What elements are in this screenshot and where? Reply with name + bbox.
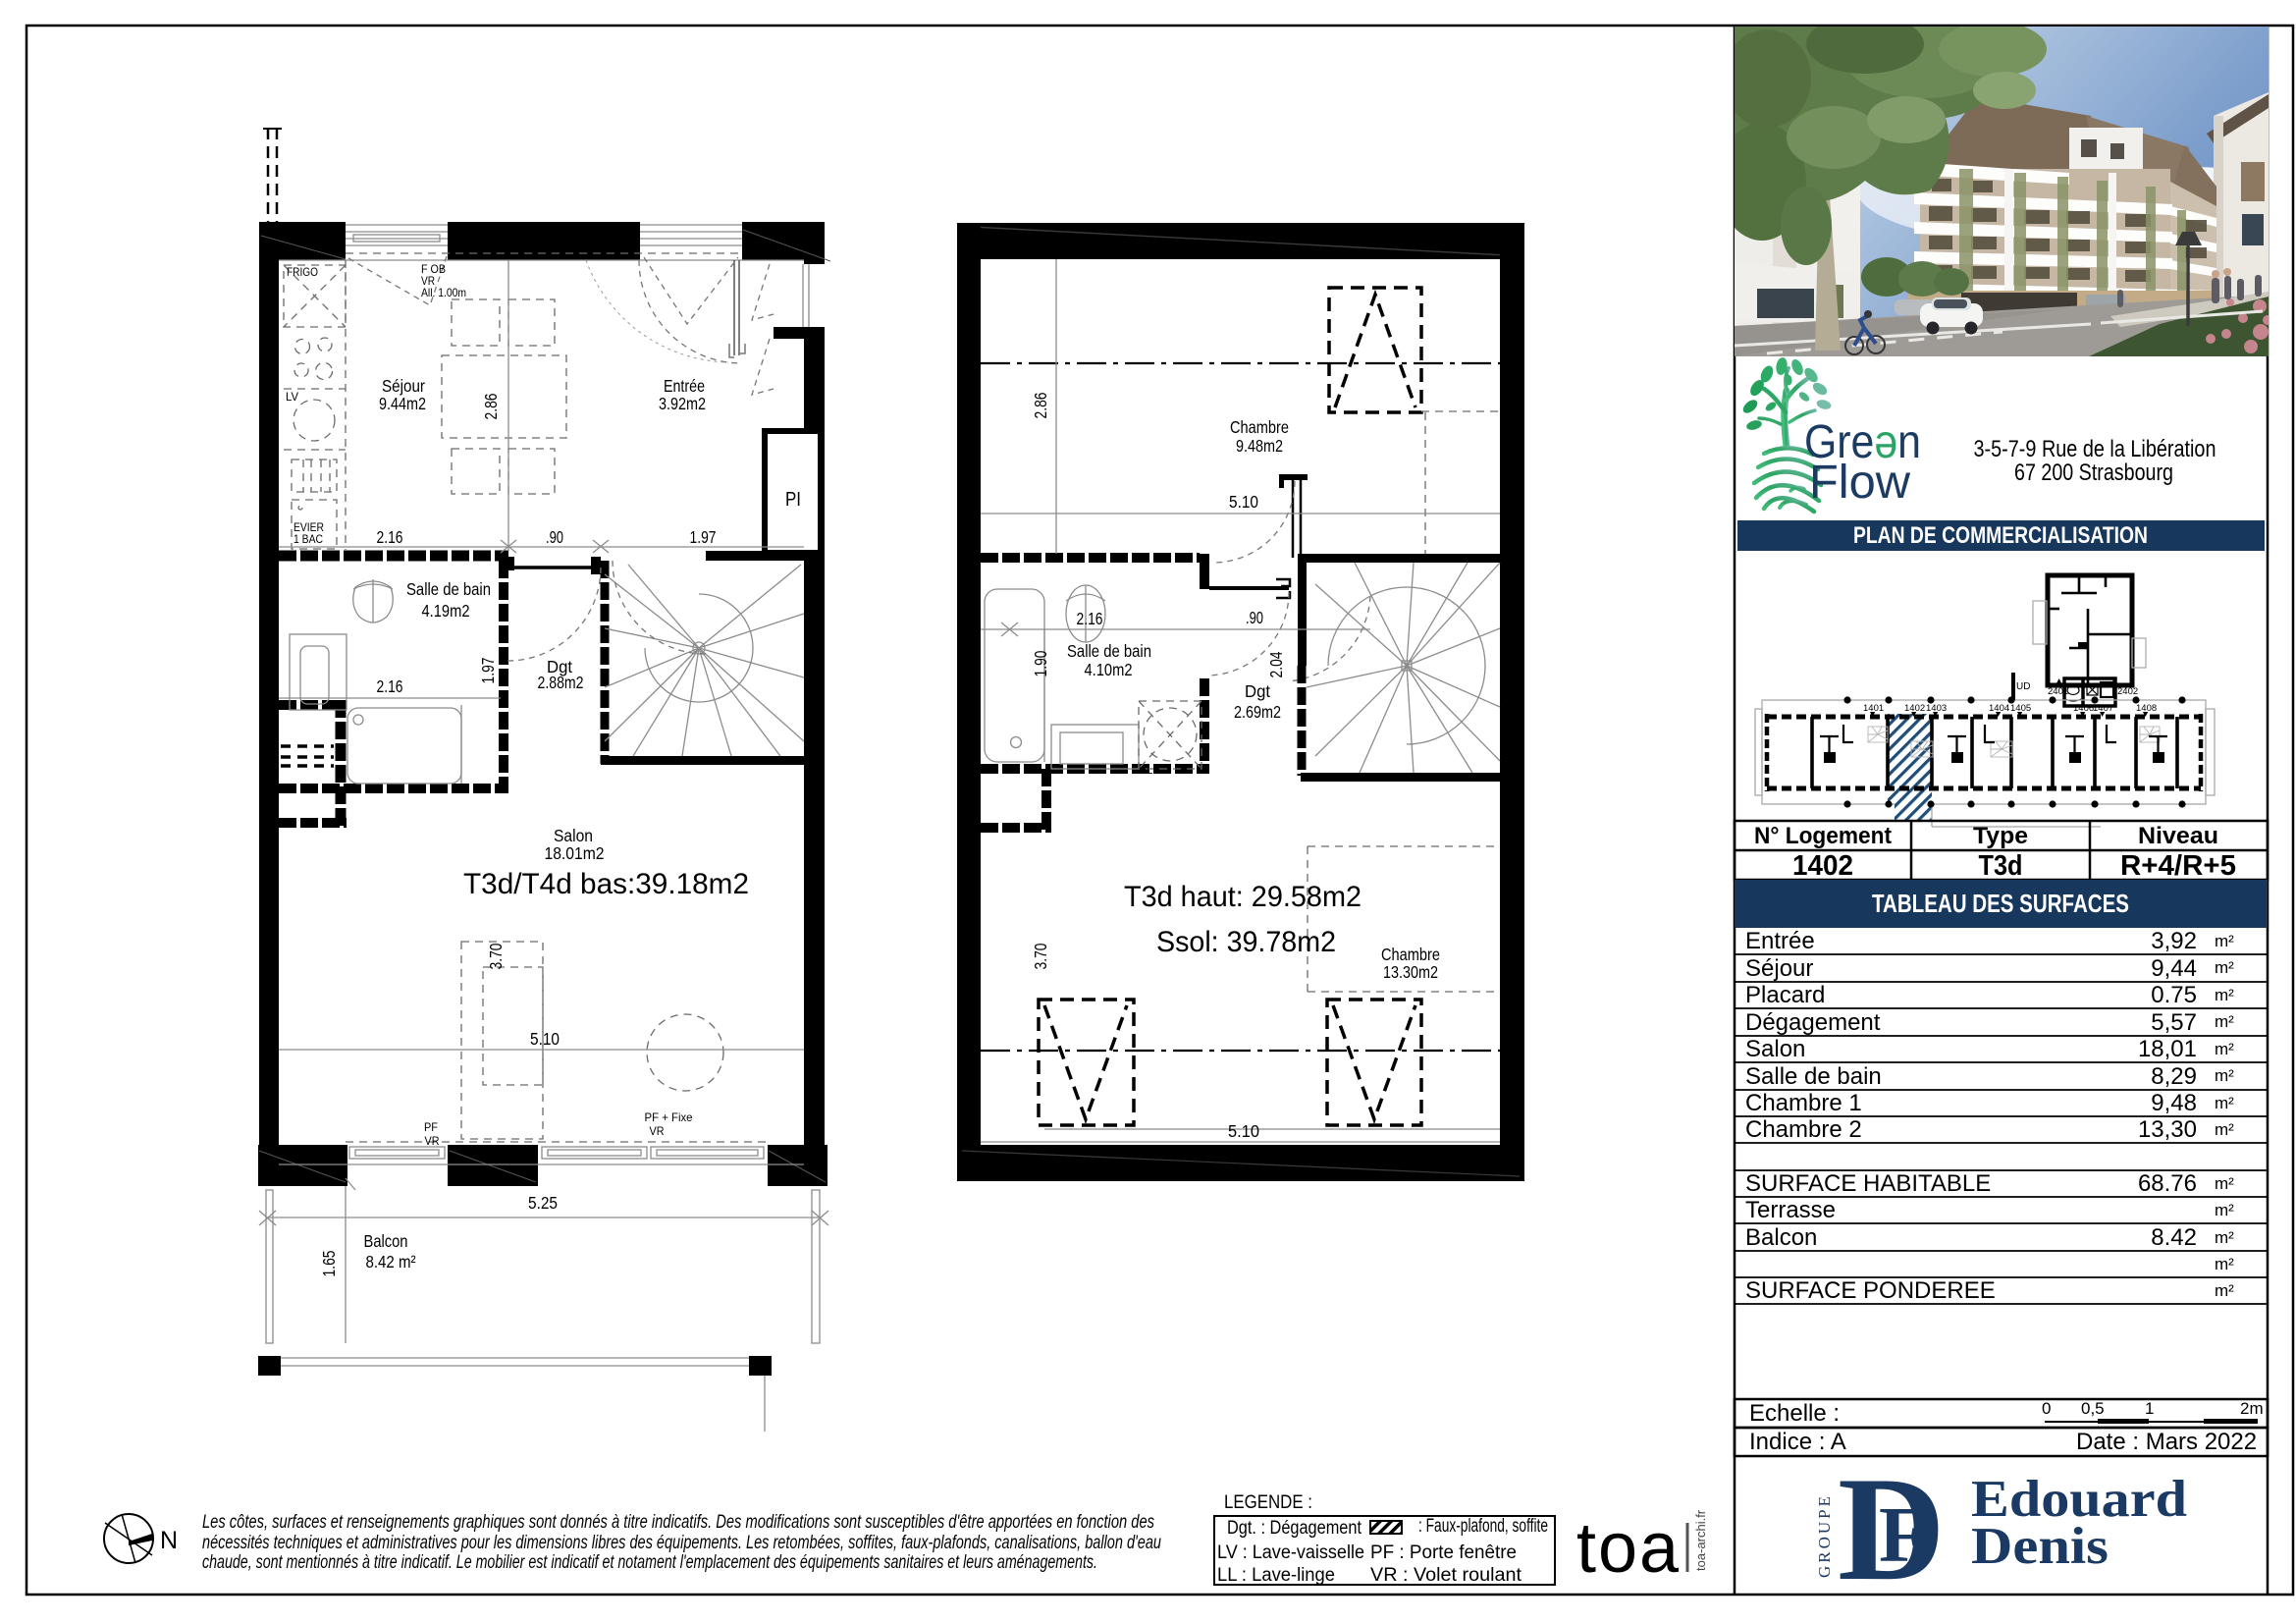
svg-text:m²: m² [2215,1066,2234,1085]
svg-text:2.88m2: 2.88m2 [538,673,584,692]
svg-text:PI: PI [785,489,801,511]
svg-text:LV : Lave-vaisselle: LV : Lave-vaisselle [1217,1542,1364,1563]
svg-text:0: 0 [2042,1399,2051,1418]
svg-text:LL: LL [1147,763,1159,777]
svg-text:All. 1.00m: All. 1.00m [421,286,466,299]
svg-text:Denis: Denis [1971,1518,2109,1575]
svg-text:4.19m2: 4.19m2 [422,601,470,621]
svg-text:1 BAC: 1 BAC [294,532,323,546]
svg-text:1: 1 [2145,1399,2154,1418]
svg-text:: Faux-plafond, soffite: : Faux-plafond, soffite [1418,1516,1548,1537]
svg-text:18.01m2: 18.01m2 [545,843,605,863]
svg-text:3.70: 3.70 [1031,943,1050,969]
svg-text:3,92: 3,92 [2151,928,2197,954]
svg-text:VR: VR [650,1124,665,1138]
svg-text:5.10: 5.10 [530,1029,560,1049]
svg-text:Dégagement: Dégagement [1745,1009,1881,1036]
svg-text:8,29: 8,29 [2151,1063,2197,1090]
svg-text:PF + Fixe: PF + Fixe [645,1110,693,1124]
svg-text:LEGENDE :: LEGENDE : [1224,1492,1312,1513]
svg-text:13.30m2: 13.30m2 [1383,962,1438,982]
svg-text:Balcon: Balcon [364,1231,408,1251]
svg-text:T3d/T4d bas:39.18m2: T3d/T4d bas:39.18m2 [463,868,749,900]
svg-text:Entrée: Entrée [664,376,705,396]
svg-text:Terrasse: Terrasse [1745,1197,1836,1223]
svg-text:5.25: 5.25 [528,1193,558,1213]
svg-text:2m: 2m [2240,1399,2264,1418]
svg-text:3.92m2: 3.92m2 [659,394,706,413]
svg-text:m²: m² [2215,1228,2234,1247]
svg-text:9,48: 9,48 [2151,1090,2197,1116]
svg-text:m²: m² [2215,986,2234,1004]
svg-text:2.04: 2.04 [1266,651,1286,677]
svg-text:1.65: 1.65 [319,1251,339,1277]
svg-text:LV: LV [286,390,298,404]
svg-text:Chambre: Chambre [1381,945,1440,964]
svg-text:TABLEAU DES SURFACES: TABLEAU DES SURFACES [1872,889,2129,918]
svg-text:2401: 2401 [2048,686,2068,697]
svg-text:.90: .90 [1246,608,1263,627]
svg-text:.90: .90 [546,527,563,547]
svg-text:Indice : A: Indice : A [1749,1429,1846,1455]
svg-text:Séjour: Séjour [1745,955,1813,982]
svg-text:5.10: 5.10 [1228,1121,1259,1141]
svg-text:2.16: 2.16 [377,676,403,696]
svg-text:m²: m² [2215,958,2234,977]
svg-text:3.70: 3.70 [486,943,506,969]
svg-text:Salon: Salon [1745,1036,1805,1062]
svg-text:F: F [1879,1492,1927,1579]
svg-text:4.10m2: 4.10m2 [1085,660,1133,679]
svg-text:Salon: Salon [554,826,593,845]
svg-text:PF : Porte fenêtre: PF : Porte fenêtre [1370,1542,1517,1563]
svg-text:0.75: 0.75 [2151,982,2197,1008]
svg-text:Entrée: Entrée [1745,928,1815,954]
svg-text:Ssol: 39.78m2: Ssol: 39.78m2 [1156,926,1336,958]
svg-text:m²: m² [2215,1281,2234,1300]
svg-text:67 200 Strasbourg: 67 200 Strasbourg [2014,460,2173,486]
svg-text:8.42 m²: 8.42 m² [366,1252,416,1271]
svg-text:nécessités techniques et admin: nécessités techniques et administratives… [202,1533,1161,1553]
svg-text:5,57: 5,57 [2151,1009,2197,1036]
svg-text:Chambre 1: Chambre 1 [1745,1090,1862,1116]
svg-text:Les côtes, surfaces et renseig: Les côtes, surfaces et renseignements gr… [202,1512,1154,1533]
svg-text:2402: 2402 [2117,686,2138,697]
svg-text:2.69m2: 2.69m2 [1234,702,1281,722]
svg-text:m²: m² [2215,1174,2234,1193]
svg-text:Date : Mars 2022: Date : Mars 2022 [2076,1429,2257,1455]
svg-text:13,30: 13,30 [2138,1116,2197,1143]
svg-text:FRIGO: FRIGO [287,265,318,279]
svg-text:m²: m² [2215,1201,2234,1219]
svg-text:T3d haut: 29.58m2: T3d haut: 29.58m2 [1124,881,1362,913]
svg-text:toa: toa [1576,1509,1681,1588]
svg-text:18,01: 18,01 [2138,1036,2197,1062]
svg-text:1402: 1402 [1792,850,1853,882]
svg-text:PLAN DE COMMERCIALISATION: PLAN DE COMMERCIALISATION [1853,522,2148,549]
svg-text:Niveau: Niveau [2138,823,2218,849]
svg-text:Chambre: Chambre [1230,417,1289,437]
svg-text:Salle de bain: Salle de bain [406,579,491,599]
svg-text:2.86: 2.86 [1031,393,1050,419]
svg-text:UD: UD [2016,681,2030,692]
svg-text:0,5: 0,5 [2081,1399,2105,1418]
svg-text:2.86: 2.86 [481,394,501,420]
svg-text:2.16: 2.16 [1077,609,1103,628]
svg-text:68.76: 68.76 [2138,1170,2197,1197]
svg-text:SURFACE PONDEREE: SURFACE PONDEREE [1745,1277,1996,1304]
svg-text:VR: VR [425,1134,440,1148]
svg-text:1.97: 1.97 [690,527,717,547]
svg-text:m²: m² [2215,1120,2234,1139]
svg-text:Dgt. : Dégagement: Dgt. : Dégagement [1227,1518,1362,1539]
svg-text:Type: Type [1973,823,2028,849]
svg-text:SURFACE HABITABLE: SURFACE HABITABLE [1745,1170,1991,1197]
svg-text:m²: m² [2215,1012,2234,1031]
svg-text:9,44: 9,44 [2151,955,2197,982]
svg-text:Dgt: Dgt [1245,681,1270,701]
svg-text:PF: PF [424,1120,438,1134]
svg-text:chaude, sont mentionnés à titr: chaude, sont mentionnés à titre indicati… [202,1552,1097,1573]
svg-text:Flow: Flow [1809,457,1910,509]
svg-text:N: N [160,1527,178,1554]
svg-text:R+4/R+5: R+4/R+5 [2120,850,2236,882]
svg-text:9.48m2: 9.48m2 [1236,436,1283,456]
svg-text:N° Logement: N° Logement [1754,823,1892,849]
svg-text:Echelle :: Echelle : [1749,1400,1840,1427]
svg-text:2.16: 2.16 [377,527,403,547]
svg-text:m²: m² [2215,1094,2234,1112]
svg-text:toa-archi.fr: toa-archi.fr [1693,1509,1708,1571]
svg-text:Salle de bain: Salle de bain [1745,1063,1882,1090]
svg-text:GROUPE: GROUPE [1815,1493,1834,1578]
svg-text:m²: m² [2215,1255,2234,1273]
svg-text:Balcon: Balcon [1745,1224,1817,1251]
svg-text:Séjour: Séjour [382,376,425,396]
svg-text:9.44m2: 9.44m2 [379,394,426,413]
svg-text:m²: m² [2215,1040,2234,1058]
svg-text:Placard: Placard [1745,982,1825,1008]
svg-text:T3d: T3d [1979,850,2023,882]
svg-text:LL : Lave-linge: LL : Lave-linge [1217,1565,1335,1586]
svg-text:1.90: 1.90 [1031,650,1050,676]
svg-text:8.42: 8.42 [2151,1224,2197,1251]
svg-text:Salle de bain: Salle de bain [1067,641,1151,661]
svg-text:m²: m² [2215,932,2234,950]
svg-text:Chambre 2: Chambre 2 [1745,1116,1862,1143]
svg-text:5.10: 5.10 [1229,492,1258,512]
svg-text:3-5-7-9 Rue de la Libération: 3-5-7-9 Rue de la Libération [1974,436,2216,462]
svg-text:VR : Volet roulant: VR : Volet roulant [1370,1565,1522,1586]
svg-text:1.97: 1.97 [478,658,498,684]
